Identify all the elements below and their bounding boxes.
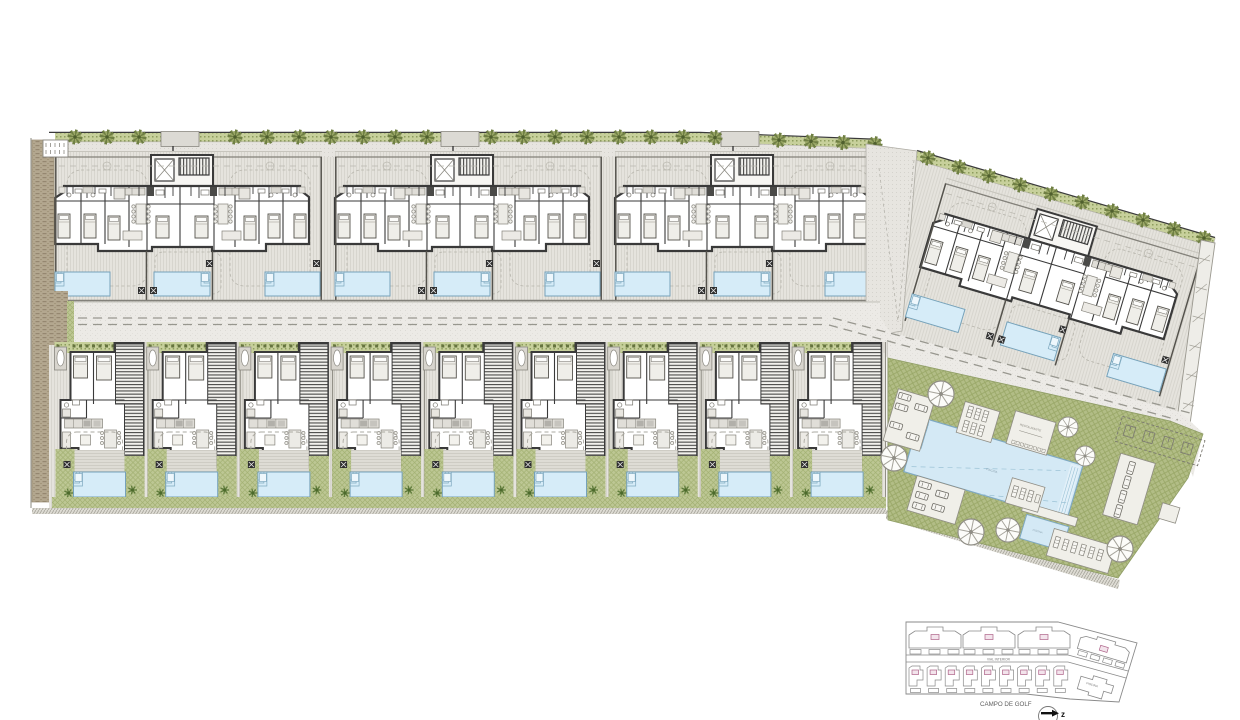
svg-text:CAMPO DE GOLF: CAMPO DE GOLF: [980, 701, 1032, 708]
svg-text:VIAL INTERIOR: VIAL INTERIOR: [987, 658, 1011, 662]
svg-text:z: z: [1061, 710, 1065, 719]
